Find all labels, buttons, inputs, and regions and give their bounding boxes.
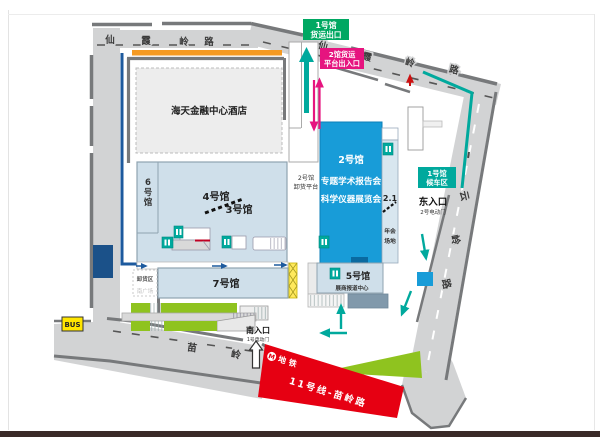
escalator-green [131,321,150,331]
hall6-char: 馆 [144,197,153,208]
hotel-label: 海天金融中心酒店 [171,105,248,117]
hall1-waiting-sign: 1号馆 候车区 [418,167,456,188]
freight-platform-line1: 2馆货运 [329,50,356,59]
toilet-icon [222,236,231,248]
hall5-area: 5号馆 展商报道中心 [308,263,388,308]
bus-label: BUS [64,321,80,329]
freight-exit-line2: 货运出口 [309,30,341,40]
teal-arrow-east2 [402,291,411,314]
hall3-label: 3号馆 [226,203,253,216]
freight-exit-line1: 1号馆 [315,20,336,30]
toilet-icon [162,237,173,248]
hall1-freight-exit-sign: 1号馆 货运出口 [303,19,349,40]
road-char: 仙 [105,34,115,46]
hall4-label: 4号馆 [203,190,230,203]
south-plaza-label: 南广场 [137,287,154,295]
east-entrance-label: 东入口 [419,196,448,208]
unload-platform-line1: 2号馆 [298,174,314,182]
exhibition-site-map: 仙 霞 岭 路 仙 霞 岭 路 云 岭 路 苗 岭 海天金融中心酒店 [0,0,600,439]
south-gate-label: 1号电动门 [247,336,269,343]
hall2-subtitle1: 专题学术报告会 [321,175,382,187]
hall6-char: 号 [144,188,153,198]
escalator-green [164,321,217,331]
unload-zone-box: 卸货区 南广场 [133,270,157,296]
road-char: 路 [204,36,214,48]
south-entrance-label: 南入口 [246,325,270,335]
metro-strip: M 地铁 11号线-苗岭路 [258,344,404,418]
freight-platform-line2: 平台出入口 [324,59,360,68]
hall5-label: 5号馆 [346,270,370,282]
hall7-label: 7号馆 [213,277,240,290]
map-canvas: 仙 霞 岭 路 仙 霞 岭 路 云 岭 路 苗 岭 海天金融中心酒店 [0,0,600,439]
east-gate-label: 2号电动门 [420,208,446,216]
yellow-hatched-bar [289,263,297,298]
annual-venue-label2: 场地 [384,237,396,245]
hotel-building: 海天金融中心酒店 [136,68,282,153]
exhibitor-center-label: 展商报道中心 [335,284,369,292]
annual-venue-label1: 年会 [384,227,396,235]
waiting-line2: 候车区 [426,178,448,187]
road-char: 岭 [179,36,189,48]
escalator-green [161,303,237,313]
slate-block [348,294,388,308]
orange-strip [132,50,282,56]
road-char: 霞 [141,35,151,47]
toilet-icon [330,268,340,279]
toilet-icon [174,226,183,238]
toilet-icon [319,236,329,248]
unload-zone-label: 卸货区 [137,275,154,283]
hall6-char: 6 [145,178,151,188]
toilet-icon [383,143,393,155]
unload-platform-line2: 卸货平台 [294,183,319,191]
waiting-line1: 1号馆 [427,169,446,178]
teal-arrow-east1 [422,234,426,258]
hall2-title: 2号馆 [338,154,364,166]
blue-square-marker [417,272,433,286]
hall7-row: 7号馆 卸货区 南广场 [133,262,297,298]
east-white-building [408,107,423,150]
bus-stop-sign: BUS [62,317,83,331]
escalator-green [131,303,150,313]
hall2-freight-platform-sign: 2馆货运 平台出入口 [320,48,364,69]
navy-block [93,245,113,278]
hall2-unload-platform-label: 2号馆 卸货平台 [294,174,319,191]
hall2-subtitle2: 科学仪器展览会 [321,193,382,205]
bottom-frame-bar [0,431,600,437]
